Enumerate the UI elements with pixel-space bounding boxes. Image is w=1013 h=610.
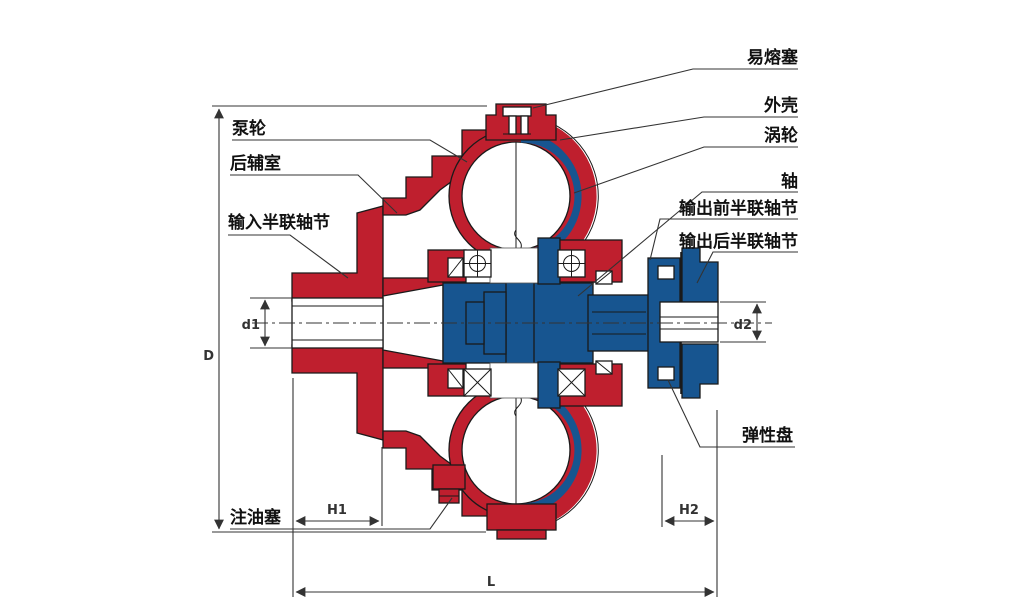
seal-right-upper [596,271,612,284]
label-output-rear-half-coupling: 输出后半联轴节 [679,231,798,252]
label-elastic-disc: 弹性盘 [742,425,793,446]
roller-bearing-left [464,369,491,396]
label-oil-plug: 注油塞 [230,507,282,528]
dim-H2-label: H2 [679,503,699,518]
output-bore-shape [660,302,718,342]
dim-L-label: L [487,575,495,590]
seal-left-upper [448,258,463,277]
dim-d2-label: d2 [734,318,752,333]
label-pump-wheel: 泵轮 [232,118,266,139]
roller-bearing-right [558,369,585,396]
bottom-boss-shape [487,504,556,539]
coupling-cross-section-svg: D d1 d2 H1 H2 L [0,0,1013,610]
seal-left-lower [448,369,463,388]
label-turbine: 涡轮 [764,125,798,146]
label-output-front-half-coupling: 输出前半联轴节 [679,198,798,219]
ball-bearing-right [558,250,585,277]
fusible-plug-shape [486,104,556,140]
label-fusible-plug: 易熔塞 [747,47,799,68]
dim-H1-label: H1 [327,503,347,518]
fluid-coupling-diagram: D d1 d2 H1 H2 L [0,0,1013,610]
label-shell: 外壳 [764,95,798,116]
label-shaft: 轴 [781,171,798,192]
ball-bearing-left [464,250,491,277]
seal-right-lower [596,361,612,374]
label-rear-chamber: 后辅室 [230,153,281,174]
dim-d1-label: d1 [242,318,260,333]
dim-D-label: D [203,349,214,364]
label-input-half-coupling: 输入半联轴节 [228,212,330,233]
